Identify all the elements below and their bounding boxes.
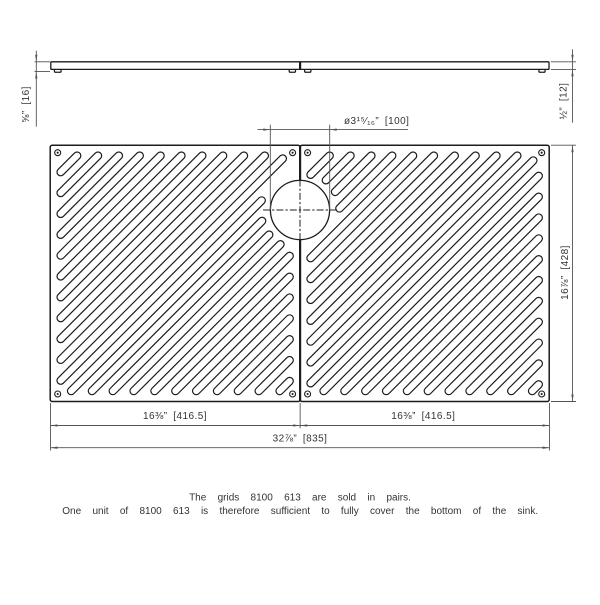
svg-text:32⅞” [835]: 32⅞” [835] [273, 434, 328, 445]
svg-text:½” [12]: ½” [12] [559, 83, 570, 120]
svg-text:The grids 8100 613 are sold in: The grids 8100 613 are sold in pairs. [189, 493, 411, 504]
svg-text:16⅜” [416.5]: 16⅜” [416.5] [143, 411, 207, 422]
svg-text:16⅜” [416.5]: 16⅜” [416.5] [391, 411, 455, 422]
svg-text:One unit of 8100 613 is theref: One unit of 8100 613 is therefore suffic… [62, 506, 538, 517]
svg-text:16⅞” [428]: 16⅞” [428] [560, 245, 571, 300]
svg-text:⅝” [16]: ⅝” [16] [21, 86, 32, 123]
svg-text:ø3¹⁵⁄₁₆” [100]: ø3¹⁵⁄₁₆” [100] [344, 116, 409, 127]
